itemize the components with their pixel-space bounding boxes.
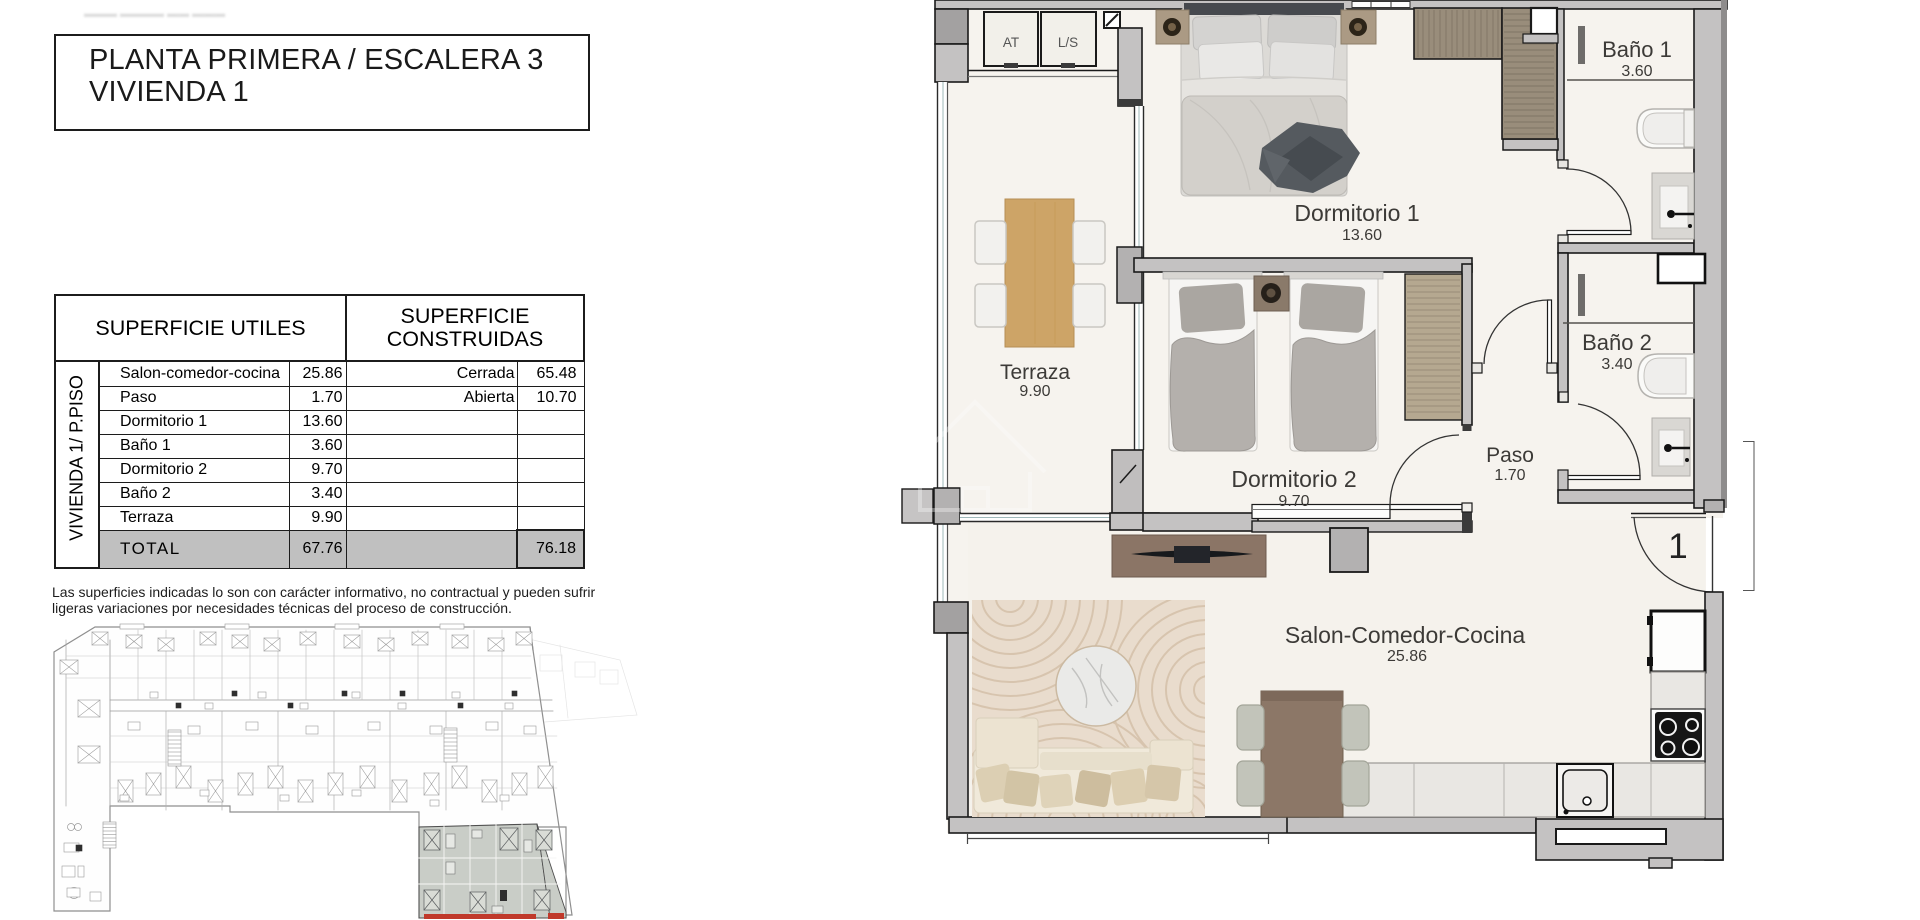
svg-text:L/S: L/S bbox=[1058, 35, 1078, 50]
svg-text:1: 1 bbox=[1668, 527, 1687, 566]
svg-text:1.70: 1.70 bbox=[1494, 467, 1525, 484]
svg-text:13.60: 13.60 bbox=[1342, 227, 1382, 244]
svg-text:3.40: 3.40 bbox=[1601, 356, 1632, 373]
svg-text:Baño 1: Baño 1 bbox=[1602, 37, 1672, 62]
svg-text:Salon-Comedor-Cocina: Salon-Comedor-Cocina bbox=[1285, 622, 1526, 648]
svg-text:Baño 2: Baño 2 bbox=[1582, 330, 1652, 355]
svg-text:Dormitorio 1: Dormitorio 1 bbox=[1294, 200, 1419, 226]
svg-text:9.90: 9.90 bbox=[1019, 383, 1050, 400]
svg-text:25.86: 25.86 bbox=[1387, 648, 1427, 665]
svg-text:Paso: Paso bbox=[1486, 444, 1534, 467]
svg-text:3.60: 3.60 bbox=[1621, 63, 1652, 80]
svg-text:9.70: 9.70 bbox=[1278, 493, 1309, 510]
svg-text:Dormitorio 2: Dormitorio 2 bbox=[1231, 466, 1356, 492]
svg-text:AT: AT bbox=[1003, 35, 1019, 50]
svg-text:Terraza: Terraza bbox=[1000, 361, 1070, 384]
